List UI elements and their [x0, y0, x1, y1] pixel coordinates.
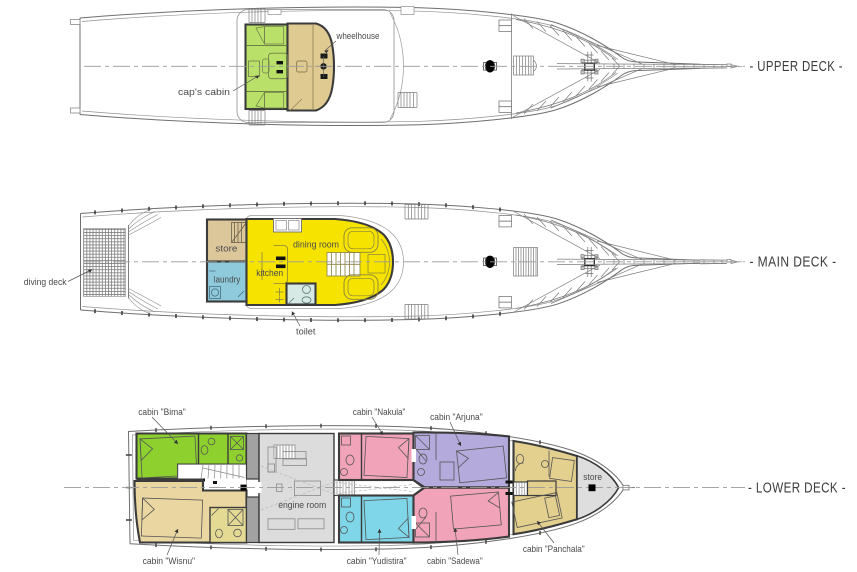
svg-text:- UPPER DECK -: - UPPER DECK -: [750, 59, 844, 75]
svg-text:cabin "Panchala": cabin "Panchala": [523, 544, 585, 554]
svg-text:wheelhouse: wheelhouse: [336, 31, 380, 41]
svg-text:store: store: [583, 472, 602, 482]
svg-text:cabin "Bima": cabin "Bima": [138, 407, 186, 417]
svg-text:dining room: dining room: [293, 240, 339, 250]
svg-text:cabin "Sadewa": cabin "Sadewa": [427, 556, 483, 566]
svg-text:cabin "Wisnu": cabin "Wisnu": [143, 556, 196, 566]
svg-text:laundry: laundry: [214, 275, 241, 285]
svg-text:cabin "Nakula": cabin "Nakula": [353, 407, 406, 417]
svg-text:cabin "Arjuna": cabin "Arjuna": [430, 412, 483, 422]
svg-text:- LOWER DECK -: - LOWER DECK -: [748, 481, 846, 497]
svg-text:kitchen: kitchen: [256, 268, 283, 278]
svg-text:cabin "Yudistira": cabin "Yudistira": [347, 556, 407, 566]
svg-text:- MAIN DECK -: - MAIN DECK -: [750, 255, 837, 271]
svg-text:toilet: toilet: [296, 327, 316, 337]
svg-text:diving deck: diving deck: [24, 277, 67, 287]
svg-text:store: store: [215, 244, 237, 254]
svg-text:cap's cabin: cap's cabin: [178, 87, 230, 97]
svg-text:engine room: engine room: [278, 500, 326, 510]
